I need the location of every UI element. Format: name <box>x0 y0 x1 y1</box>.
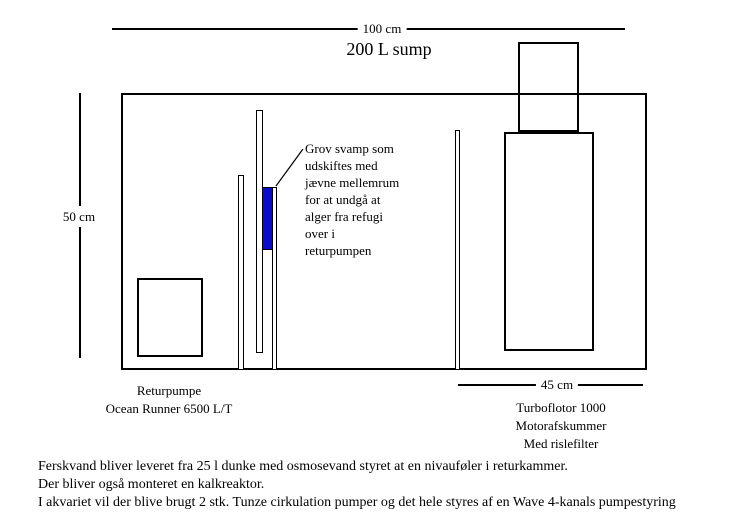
skimmer-caption: Turboflotor 1000 Motorafskummer Med risl… <box>516 399 607 453</box>
leader-line <box>0 0 740 525</box>
annotation-line: jævne mellemrum <box>305 174 399 191</box>
sump-diagram: 100 cm 200 L sump 50 cm Grov svamp som u… <box>0 0 740 525</box>
annotation-line: udskiftes med <box>305 157 399 174</box>
note-line: Ferskvand bliver leveret fra 25 l dunke … <box>38 458 676 476</box>
annotation-line: alger fra refugi <box>305 208 399 225</box>
skimmer-caption-line: Med rislefilter <box>516 435 607 453</box>
baffle-skimmer-chamber <box>455 130 460 370</box>
skimmer-caption-line: Turboflotor 1000 <box>516 399 607 417</box>
annotation-line: returpumpen <box>305 242 399 259</box>
dimension-label-bottom-right: 45 cm <box>536 377 578 392</box>
skimmer-body <box>504 132 594 351</box>
annotation-line: Grov svamp som <box>305 140 399 157</box>
return-pump-caption: Returpumpe Ocean Runner 6500 L/T <box>106 382 233 418</box>
skimmer-caption-line: Motorafskummer <box>516 417 607 435</box>
annotation-line: over i <box>305 225 399 242</box>
skimmer-riser <box>518 42 579 132</box>
sponge-annotation: Grov svamp som udskiftes med jævne melle… <box>305 140 399 259</box>
notes-block: Ferskvand bliver leveret fra 25 l dunke … <box>38 458 676 512</box>
note-line: I akvariet vil der blive brugt 2 stk. Tu… <box>38 494 676 512</box>
return-pump-caption-line: Ocean Runner 6500 L/T <box>106 400 233 418</box>
note-line: Der bliver også monteret en kalkreaktor. <box>38 476 676 494</box>
return-pump-caption-line: Returpumpe <box>106 382 233 400</box>
annotation-line: for at undgå at <box>305 191 399 208</box>
